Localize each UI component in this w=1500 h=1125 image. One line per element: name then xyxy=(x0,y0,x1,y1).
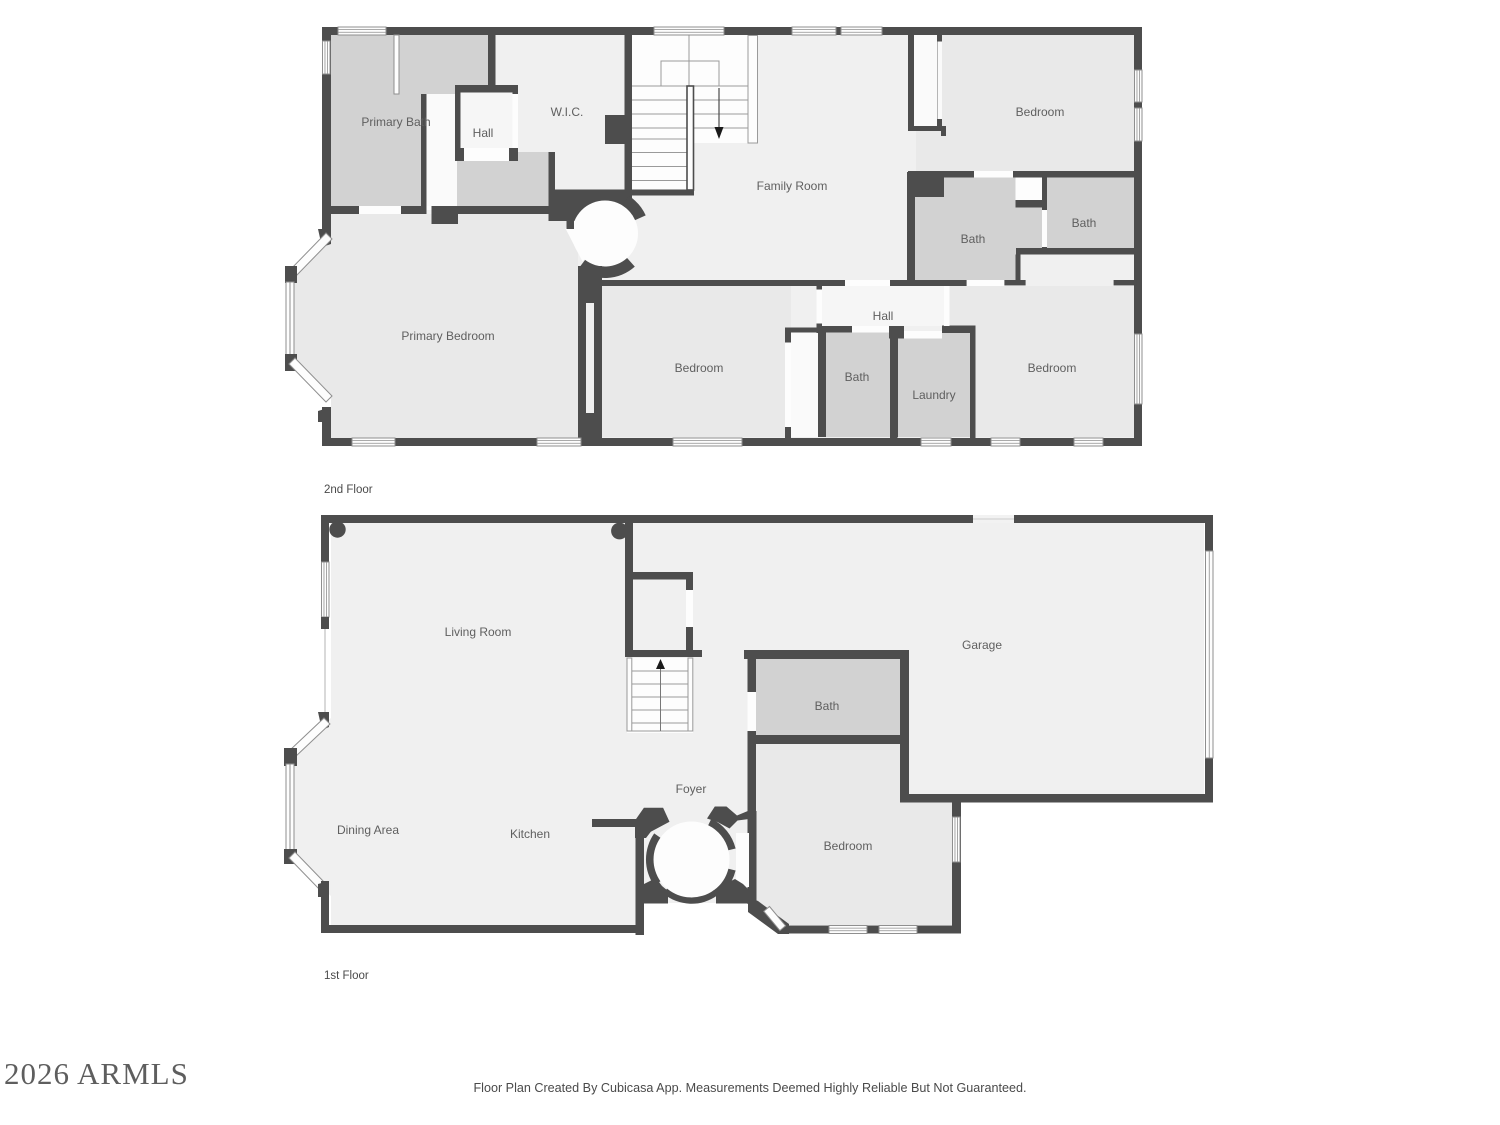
svg-text:2026 ARMLS: 2026 ARMLS xyxy=(4,1056,189,1091)
svg-text:Foyer: Foyer xyxy=(676,782,707,796)
svg-text:Kitchen: Kitchen xyxy=(510,827,550,841)
svg-text:Primary Bath: Primary Bath xyxy=(361,115,430,129)
svg-text:1st Floor: 1st Floor xyxy=(324,970,369,982)
svg-text:Living Room: Living Room xyxy=(445,625,512,639)
svg-text:Primary Bedroom: Primary Bedroom xyxy=(401,329,494,343)
svg-text:Family Room: Family Room xyxy=(757,179,828,193)
svg-text:Floor Plan Created By Cubicasa: Floor Plan Created By Cubicasa App. Meas… xyxy=(473,1081,1026,1095)
svg-text:Laundry: Laundry xyxy=(912,388,955,402)
svg-text:Bath: Bath xyxy=(961,232,986,246)
svg-text:Hall: Hall xyxy=(473,126,494,140)
svg-text:Bedroom: Bedroom xyxy=(675,361,724,375)
svg-text:Hall: Hall xyxy=(873,309,894,323)
svg-text:Dining Area: Dining Area xyxy=(337,823,399,837)
svg-text:Bedroom: Bedroom xyxy=(824,839,873,853)
svg-text:W.I.C.: W.I.C. xyxy=(551,105,584,119)
svg-text:Bath: Bath xyxy=(1072,216,1097,230)
svg-text:Bedroom: Bedroom xyxy=(1028,361,1077,375)
svg-text:Garage: Garage xyxy=(962,638,1002,652)
svg-text:Bath: Bath xyxy=(845,370,870,384)
svg-text:2nd Floor: 2nd Floor xyxy=(324,484,373,496)
svg-text:Bedroom: Bedroom xyxy=(1016,105,1065,119)
svg-text:Bath: Bath xyxy=(815,699,840,713)
